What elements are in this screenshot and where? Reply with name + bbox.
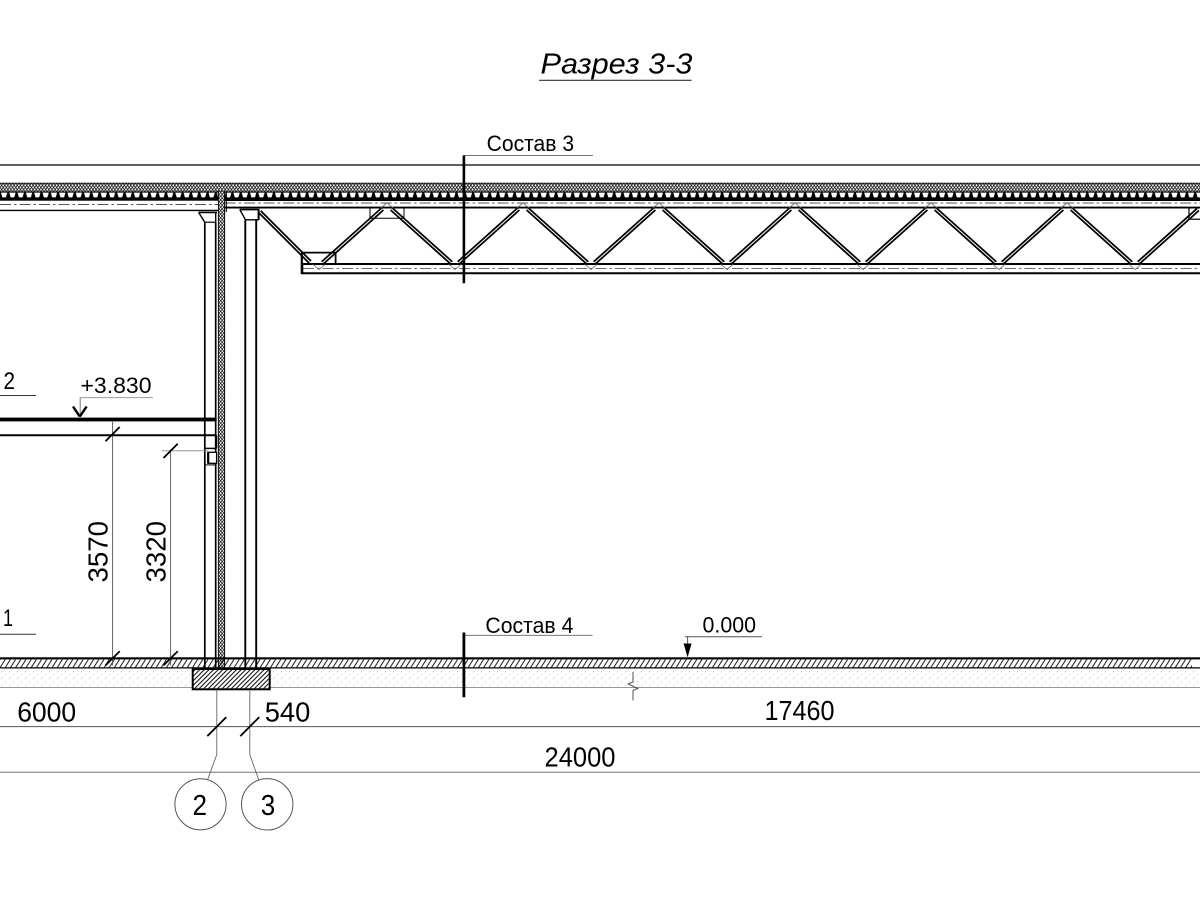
svg-text:1: 1 (3, 605, 13, 632)
svg-text:0.000: 0.000 (703, 613, 757, 638)
svg-text:2: 2 (4, 368, 16, 395)
svg-text:Разрез 3-3: Разрез 3-3 (541, 49, 693, 81)
svg-text:540: 540 (265, 697, 311, 728)
svg-text:6000: 6000 (17, 697, 76, 728)
svg-text:Состав 4: Состав 4 (485, 613, 573, 638)
svg-text:24000: 24000 (545, 742, 616, 773)
svg-text:+3.830: +3.830 (81, 373, 152, 398)
svg-text:17460: 17460 (765, 695, 835, 726)
svg-text:3570: 3570 (82, 521, 113, 583)
svg-text:3: 3 (261, 790, 276, 822)
svg-text:Состав 3: Состав 3 (487, 131, 574, 156)
svg-text:3320: 3320 (141, 521, 172, 583)
svg-text:2: 2 (193, 790, 208, 822)
